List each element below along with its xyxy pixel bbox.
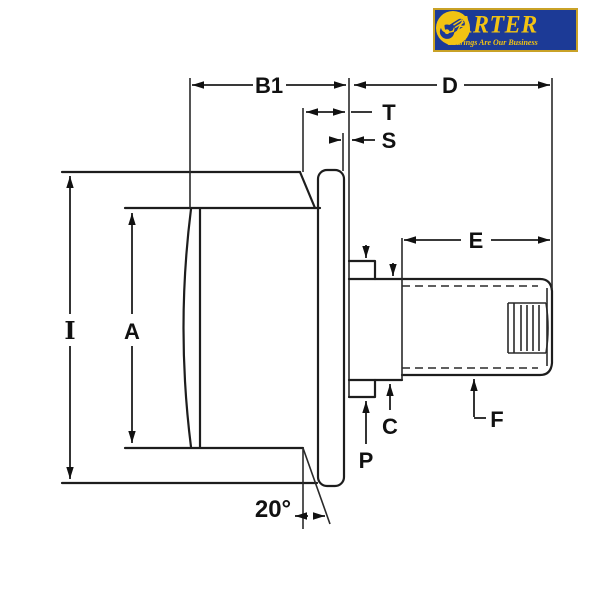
dim-label-s: S: [382, 128, 397, 153]
diagram-page: B1 D T S E: [0, 0, 600, 600]
dimension-c: C: [382, 384, 398, 439]
dimension-i: I: [64, 176, 75, 479]
dim-label-e: E: [469, 228, 484, 253]
carter-logo: CARTER Bearings Are Our Business: [433, 8, 578, 52]
dimension-f: F: [474, 379, 504, 432]
dim-label-d: D: [442, 73, 458, 98]
carter-logo-brand: CARTER: [440, 12, 538, 37]
dimension-b1: B1: [192, 73, 346, 98]
dim-label-p: P: [359, 448, 374, 473]
dim-label-a: A: [124, 319, 140, 344]
dimension-d: D: [354, 73, 550, 98]
pilot-step: [349, 261, 375, 397]
dimension-p: P: [359, 401, 374, 473]
internal-thread-detail: [508, 303, 548, 353]
dim-label-angle: 20°: [255, 496, 291, 523]
crown-profile-curve: [184, 209, 192, 447]
dimension-a: A: [124, 213, 140, 443]
dimension-angle: 20°: [255, 496, 325, 523]
dim-label-f: F: [490, 407, 503, 432]
dimension-t: T: [306, 100, 396, 125]
technical-drawing: B1 D T S E: [0, 0, 600, 600]
dim-label-t: T: [382, 100, 396, 125]
dim-label-b1: B1: [255, 73, 283, 98]
roller-body-outline: [62, 172, 330, 524]
dim-label-i: I: [64, 316, 75, 345]
dim-label-c: C: [382, 414, 398, 439]
dimension-s: S: [330, 128, 396, 153]
stud-shaft: [349, 238, 552, 397]
dimension-e: E: [404, 228, 550, 253]
